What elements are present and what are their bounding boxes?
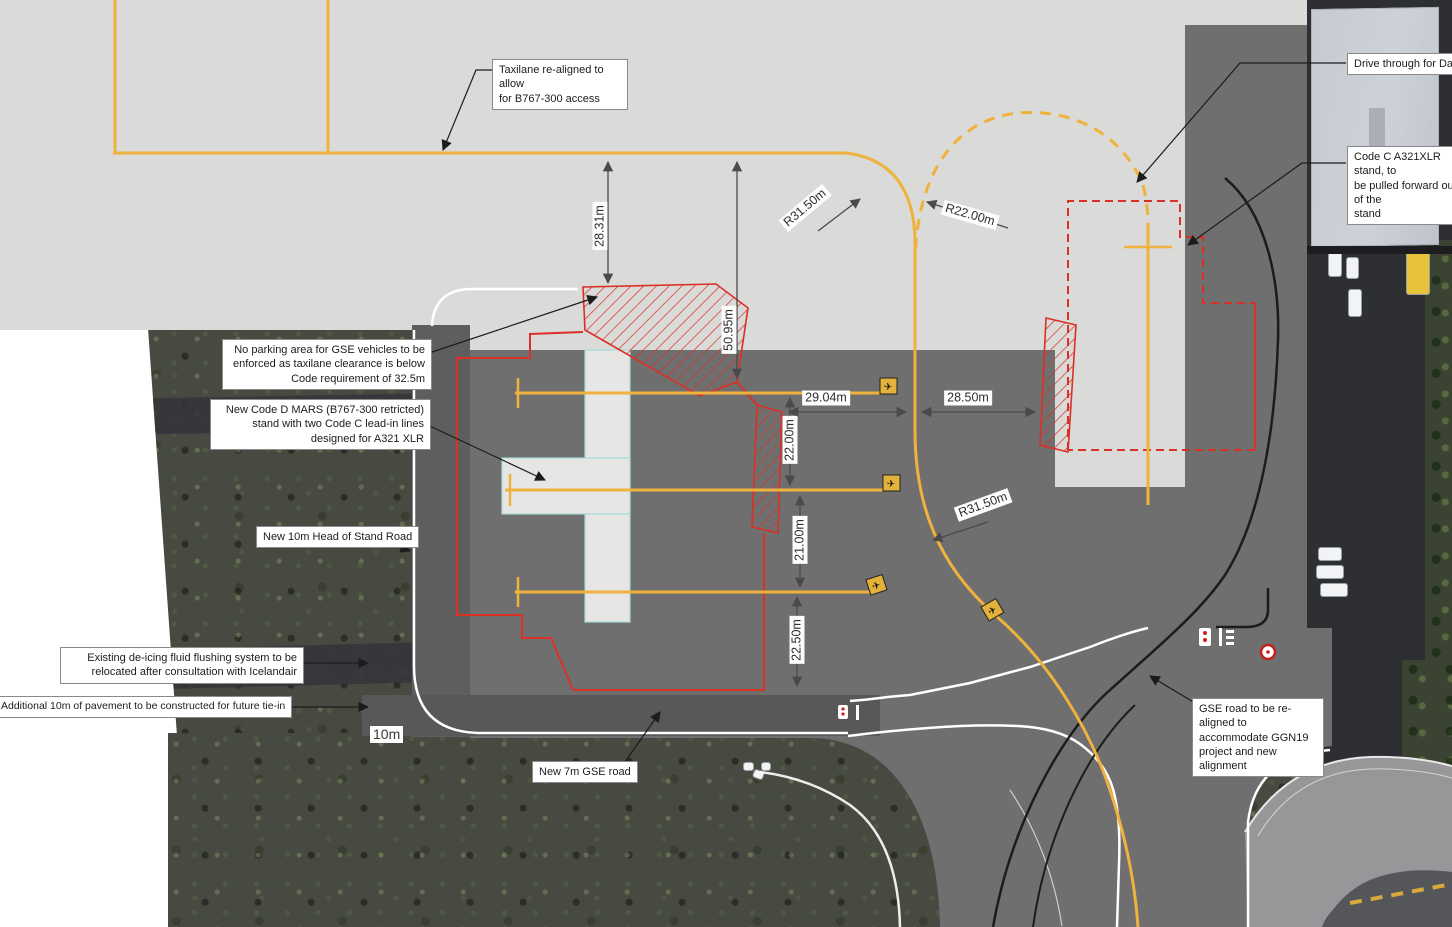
callout-drive-through: Drive through for Dash 8-400 [1347,53,1452,75]
sign-post [856,705,859,720]
dim-22-50m: 22.50m [790,616,805,664]
additional-pavement-strip [362,695,880,736]
dim-28-50m: 28.50m [944,391,992,406]
equipment-area [502,458,630,514]
apron-layout-drawing: ✈ ✈ ✈ ✈ [0,0,1452,927]
callout-head-of-stand-road: New 10m Head of Stand Road [256,526,419,548]
dim-29-04m: 29.04m [802,391,850,406]
callout-gse-road-realign: GSE road to be re-aligned to accommodate… [1192,698,1324,777]
dim-22-00m: 22.00m [783,416,798,464]
no-entry-sign [1261,645,1275,659]
gse-sign [838,705,848,719]
svg-text:✈: ✈ [887,479,895,490]
dim-28-31m: 28.31m [593,202,608,250]
callout-new-7m-gse-road: New 7m GSE road [532,761,638,783]
callout-no-parking: No parking area for GSE vehicles to be e… [222,339,432,390]
gse-sign [1199,628,1211,646]
callout-additional-pavement: Additional 10m of pavement to be constru… [0,696,292,718]
cad-linework: ✈ ✈ ✈ ✈ [0,0,1452,927]
callout-deicing: Existing de-icing fluid flushing system … [60,647,304,684]
svg-text:✈: ✈ [884,382,892,393]
dim-10m: 10m [370,726,403,743]
callout-code-d-mars: New Code D MARS (B767-300 retricted) sta… [210,399,431,450]
marking-bars [1219,628,1234,646]
callout-code-c-stand: Code C A321XLR stand, to be pulled forwa… [1347,146,1452,225]
dim-50-95m: 50.95m [722,306,737,354]
callout-taxilane-realign: Taxilane re-aligned to allow for B767-30… [492,59,628,110]
dim-21-00m: 21.00m [793,516,808,564]
